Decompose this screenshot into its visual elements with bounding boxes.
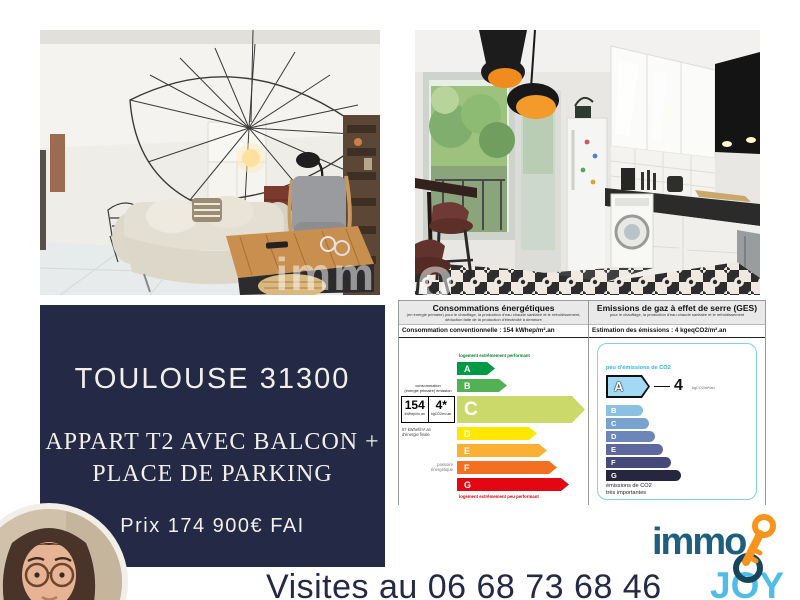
ges-class-a-letter: A bbox=[608, 377, 648, 396]
energy-chart-header: Consommations énergétiques (en énergie p… bbox=[399, 301, 588, 325]
ges-low-label: peu d'émissions de CO2 bbox=[606, 365, 671, 371]
dpe-panel: Consommations énergétiques (en énergie p… bbox=[398, 300, 766, 505]
ges-value-callout-line bbox=[654, 386, 670, 387]
ges-class-g-bar: G bbox=[606, 470, 681, 481]
listing-headline-line1: APPART T2 AVEC BALCON + bbox=[40, 426, 385, 458]
ges-class-a-bar-selected: A bbox=[606, 375, 650, 398]
ges-chart-subtitle: pour le chauffage, la production d'eau c… bbox=[589, 313, 765, 318]
energy-sieve-line2: énergétique bbox=[401, 467, 453, 472]
ges-scale: peu d'émissions de CO2 A 4 kgCO2/m²/an B… bbox=[589, 338, 765, 505]
energy-class-d-letter: D bbox=[464, 429, 471, 439]
energy-class-a-bar: A bbox=[457, 362, 495, 375]
ges-class-d-letter: D bbox=[611, 432, 616, 441]
ges-class-f-letter: F bbox=[611, 458, 616, 467]
ges-chart: Emissions de gaz à effet de serre (GES) … bbox=[589, 301, 765, 504]
ges-high-label-line2: très importantes bbox=[606, 490, 652, 497]
energy-chart-subtitle: (en énergie primaire) pour le chauffage,… bbox=[399, 313, 588, 323]
co2-value-cell: 4* kgCO2/m².an bbox=[429, 397, 455, 422]
final-energy-note: 57 kWhef/m².an d'énergie finale bbox=[402, 427, 431, 438]
ges-class-c-bar: C bbox=[606, 418, 649, 429]
energy-value-unit: kWhep/m².an bbox=[402, 412, 428, 416]
ges-chart-header: Emissions de gaz à effet de serre (GES) … bbox=[589, 301, 765, 325]
ges-value: 4 bbox=[674, 377, 683, 395]
listing-city: TOULOUSE 31300 bbox=[40, 363, 385, 396]
energy-class-c-bar-selected: C bbox=[457, 396, 585, 423]
energy-value-box: 154 kWhep/m².an 4* kgCO2/m².an bbox=[401, 396, 455, 423]
ges-class-c-letter: C bbox=[611, 419, 616, 428]
energy-class-c-letter: C bbox=[464, 399, 478, 421]
energy-value: 154 bbox=[402, 399, 428, 412]
energy-top-label: logement extrêmement performant bbox=[459, 353, 530, 358]
co2-value: 4* bbox=[429, 399, 455, 412]
listing-headline-line2: PLACE DE PARKING bbox=[40, 458, 385, 490]
energy-class-f-bar: F bbox=[457, 461, 557, 474]
ges-class-g-letter: G bbox=[611, 471, 617, 480]
real-estate-flyer: imm bbox=[0, 0, 800, 600]
ges-class-e-bar: E bbox=[606, 444, 663, 455]
energy-value-header-line2: (énergie primaire) émission bbox=[401, 389, 455, 394]
co2-value-unit: kgCO2/m².an bbox=[429, 412, 455, 416]
energy-class-b-bar: B bbox=[457, 379, 507, 392]
energy-sieve-label: passoire énergétique bbox=[401, 462, 453, 473]
immojoy-logo: immo JOY bbox=[652, 510, 797, 600]
energy-bottom-label: logement extrêmement peu performant bbox=[459, 494, 539, 499]
immojoy-logo-graphic: immo JOY bbox=[652, 510, 797, 600]
energy-class-d-bar: D bbox=[457, 427, 537, 440]
listing-headline: APPART T2 AVEC BALCON + PLACE DE PARKING bbox=[40, 426, 385, 491]
ges-high-label: émissions de CO2 très importantes bbox=[606, 483, 652, 498]
final-energy-line2: d'énergie finale bbox=[402, 432, 431, 437]
kitchen-photo: o bbox=[415, 30, 760, 295]
ges-class-e-letter: E bbox=[611, 445, 616, 454]
energy-value-cell: 154 kWhep/m².an bbox=[402, 397, 429, 422]
energy-value-header: consommation (énergie primaire) émission bbox=[401, 384, 455, 394]
ges-class-b-letter: B bbox=[611, 406, 616, 415]
ges-value-unit: kgCO2/m²/an bbox=[692, 386, 715, 390]
energy-class-g-bar: G bbox=[457, 478, 569, 491]
ges-estimation: Estimation des émissions : 4 kgeqCO2/m².… bbox=[589, 325, 765, 338]
kitchen-illustration bbox=[415, 30, 760, 295]
ges-class-b-bar: B bbox=[606, 405, 643, 416]
visit-phone-line: Visites au 06 68 73 68 46 bbox=[266, 568, 662, 600]
ges-class-f-bar: F bbox=[606, 457, 671, 468]
energy-class-e-letter: E bbox=[464, 446, 470, 456]
energy-class-a-letter: A bbox=[464, 364, 471, 374]
logo-word-immo: immo bbox=[652, 521, 746, 563]
energy-class-g-letter: G bbox=[464, 480, 471, 490]
energy-class-e-bar: E bbox=[457, 444, 547, 457]
energy-conventional-consumption: Consommation conventionnelle : 154 kWhep… bbox=[399, 325, 588, 338]
ges-class-d-bar: D bbox=[606, 431, 655, 442]
energy-class-b-letter: B bbox=[464, 381, 471, 391]
energy-scale: logement extrêmement performant A B C D … bbox=[399, 338, 588, 505]
energy-class-f-letter: F bbox=[464, 463, 470, 473]
ges-scale-frame: peu d'émissions de CO2 A 4 kgCO2/m²/an B… bbox=[597, 343, 757, 500]
living-room-photo: imm bbox=[40, 30, 380, 295]
energy-chart: Consommations énergétiques (en énergie p… bbox=[399, 301, 589, 504]
ges-high-label-line1: émissions de CO2 bbox=[606, 483, 652, 490]
living-room-illustration bbox=[40, 30, 380, 295]
